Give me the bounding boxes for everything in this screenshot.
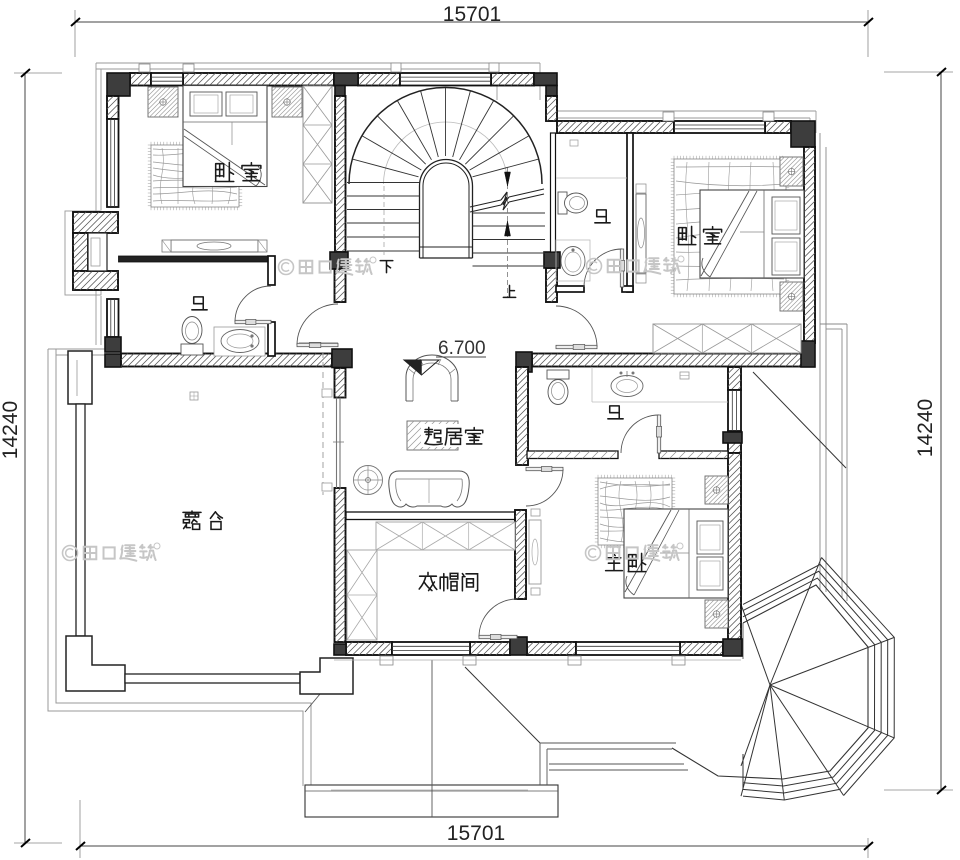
svg-text:15701: 15701 [447, 822, 505, 845]
svg-text:15701: 15701 [443, 3, 501, 26]
svg-text:6.700: 6.700 [438, 338, 486, 359]
svg-text:14240: 14240 [914, 399, 937, 457]
svg-text:14240: 14240 [0, 401, 22, 459]
